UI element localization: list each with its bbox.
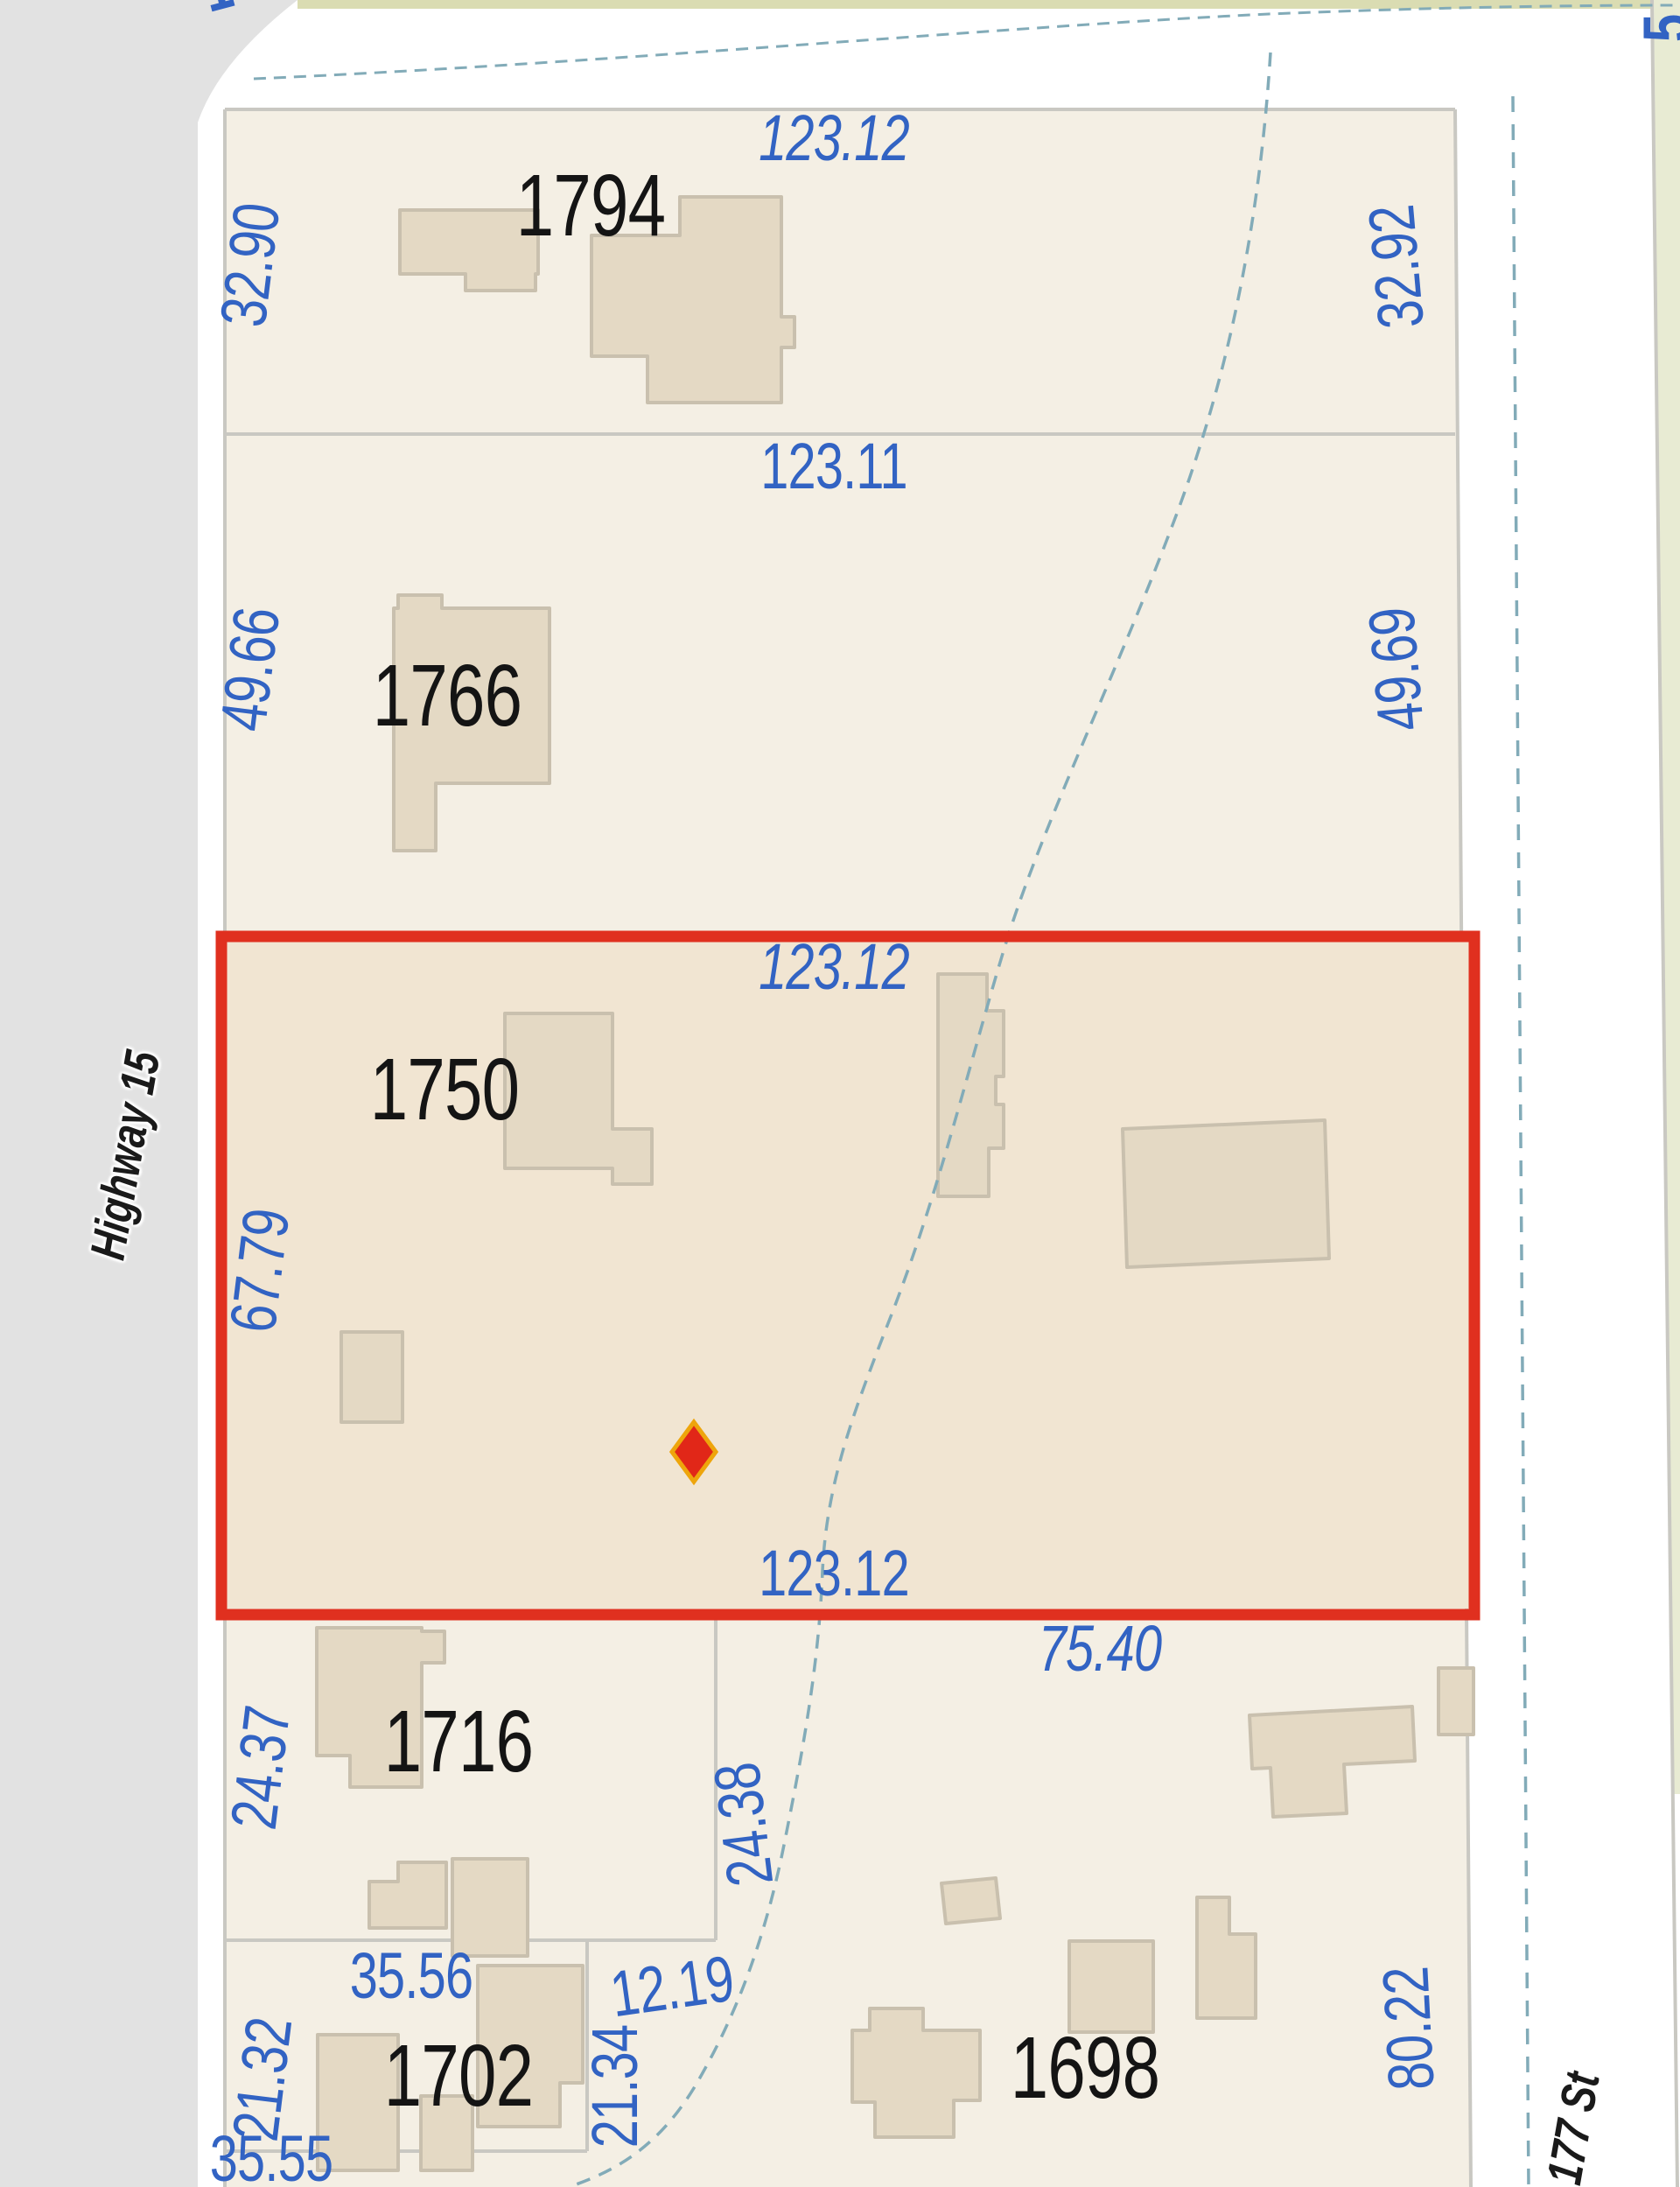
dim-label-32-90: 32.90	[211, 200, 290, 331]
parcel-map[interactable]: 1794 1766 1750 1716 1702 1698 123.12 123…	[0, 0, 1680, 2187]
dim-label-24-37: 24.37	[221, 1703, 301, 1833]
parcel-label-1698: 1698	[1011, 2024, 1159, 2112]
dim-label-123-12-mid: 123.12	[759, 935, 909, 999]
right-green-strip	[1654, 0, 1680, 1794]
dim-label-67-79: 67.79	[220, 1206, 300, 1336]
street-lane-dash-line	[1513, 96, 1529, 2187]
clipped-label-right-bottom-2: 2	[1674, 2018, 1680, 2045]
dim-label-80-22: 80.22	[1373, 1966, 1444, 2092]
dim-label-49-66: 49.66	[211, 605, 290, 735]
building	[1123, 1120, 1329, 1267]
top-road-dash-line	[254, 5, 1673, 79]
parcel-label-1702: 1702	[384, 2032, 533, 2120]
dim-label-123-11: 123.11	[760, 434, 907, 499]
building	[941, 1878, 1000, 1924]
building	[341, 1332, 402, 1422]
dim-label-123-12-top: 123.12	[759, 106, 909, 171]
dim-label-75-40: 75.40	[1039, 1616, 1162, 1681]
dim-label-21-34: 21.34	[583, 2025, 647, 2148]
parcel-label-1794: 1794	[516, 162, 665, 249]
dim-label-35-56: 35.56	[350, 1944, 473, 2008]
map-canvas	[0, 0, 1680, 2187]
parcel-label-1716: 1716	[384, 1698, 533, 1785]
dim-label-21-32: 21.32	[223, 2015, 303, 2145]
dim-label-49-69: 49.69	[1359, 606, 1434, 733]
clipped-label-top-right: 5	[1634, 14, 1680, 42]
dim-label-123-12-bottom: 123.12	[759, 1541, 909, 1606]
clipped-label-right-mid: 00.78	[1672, 1005, 1680, 1128]
parcel-label-1766: 1766	[373, 652, 521, 740]
parcel-label-1750: 1750	[370, 1046, 519, 1133]
dim-label-32-92: 32.92	[1359, 203, 1434, 331]
dim-label-24-38: 24.38	[704, 1760, 784, 1890]
dim-label-12-19: 12.19	[606, 1946, 737, 2028]
road-highway-15	[0, 0, 198, 2187]
building	[1438, 1668, 1473, 1735]
clipped-label-right-bottom-1: 2	[1674, 1957, 1680, 1984]
